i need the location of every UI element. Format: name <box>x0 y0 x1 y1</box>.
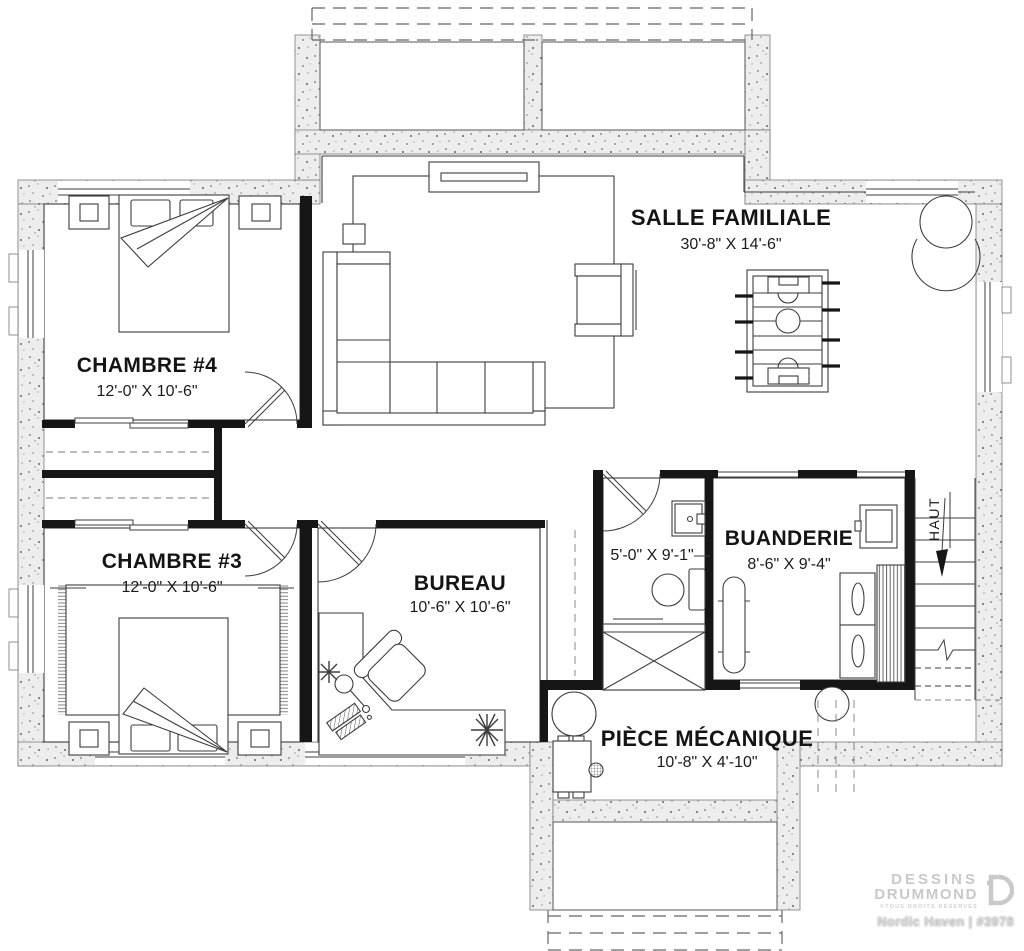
brand-line1: DESSINS <box>874 872 978 887</box>
brand-line2: DRUMMOND <box>874 887 978 902</box>
chambre3-furniture <box>58 585 288 755</box>
bureau-furniture <box>318 613 505 755</box>
door-chambre4 <box>245 372 297 427</box>
shower <box>603 619 705 690</box>
room-label-bureau: BUREAU <box>414 572 506 596</box>
window-salle-familiale-right <box>977 282 1011 392</box>
sump-pit <box>815 687 849 721</box>
washer-dryer <box>840 573 875 678</box>
window-chambre3-left <box>9 585 44 673</box>
stairs-direction-label: HAUT <box>926 497 942 541</box>
room-label-piece-mecanique: PIÈCE MÉCANIQUE <box>601 726 814 752</box>
room-dims-buanderie: 8'-6" X 9'-4" <box>747 556 830 574</box>
brand-text: DESSINS DRUMMOND ©TOUS DROITS RÉSERVÉS <box>874 872 978 910</box>
floor-plan-drawing <box>0 0 1024 951</box>
window-chambre4-left <box>9 250 44 338</box>
vanity-sink <box>672 501 705 536</box>
tv <box>429 162 539 192</box>
plant <box>318 661 340 683</box>
nightstand <box>239 196 281 229</box>
room-dims-piece-mecanique: 10'-8" X 4'-10" <box>656 754 757 772</box>
room-dims-salle-de-bain: 5'-0" X 9'-1" <box>610 547 693 565</box>
nightstand <box>69 722 109 755</box>
water-heater <box>552 692 596 736</box>
door-chambre3 <box>245 521 297 576</box>
room-dims-chambre3: 12'-0" X 10'-6" <box>121 579 222 597</box>
plan-name: Nordic Haven | #3978 <box>874 914 1014 929</box>
door-bureau <box>318 521 376 582</box>
round-chair <box>912 196 980 291</box>
room-label-buanderie: BUANDERIE <box>725 527 853 551</box>
floor-plan-page: SALLE FAMILIALE 30'-8" X 14'-6" CHAMBRE … <box>0 0 1024 951</box>
nightstand <box>69 196 109 229</box>
door-salle-de-bain <box>603 471 660 531</box>
room-dims-chambre4: 12'-0" X 10'-6" <box>96 383 197 401</box>
room-label-salle-familiale: SALLE FAMILIALE <box>631 205 831 231</box>
room-label-chambre4: CHAMBRE #4 <box>77 354 218 378</box>
room-dims-bureau: 10'-6" X 10'-6" <box>409 599 510 617</box>
foosball-table <box>735 270 840 392</box>
toilet <box>652 569 705 610</box>
chambre4-furniture <box>69 195 281 332</box>
armchair <box>575 264 636 336</box>
brand-line3: ©TOUS DROITS RÉSERVÉS <box>874 904 978 910</box>
laundry-sink <box>855 505 897 548</box>
drummond-d-logo-icon <box>984 872 1014 910</box>
bed <box>119 618 228 754</box>
floor-drain <box>589 763 603 777</box>
room-label-chambre3: CHAMBRE #3 <box>102 550 243 574</box>
shelving <box>877 565 905 682</box>
furnace <box>553 736 591 798</box>
sectional-sofa <box>323 252 545 425</box>
brand-block: DESSINS DRUMMOND ©TOUS DROITS RÉSERVÉS N… <box>874 872 1014 929</box>
side-table <box>343 224 365 244</box>
room-dims-salle-familiale: 30'-8" X 14'-6" <box>680 236 781 254</box>
ironing-board <box>718 577 750 673</box>
bed <box>119 195 229 332</box>
nightstand <box>238 722 281 755</box>
